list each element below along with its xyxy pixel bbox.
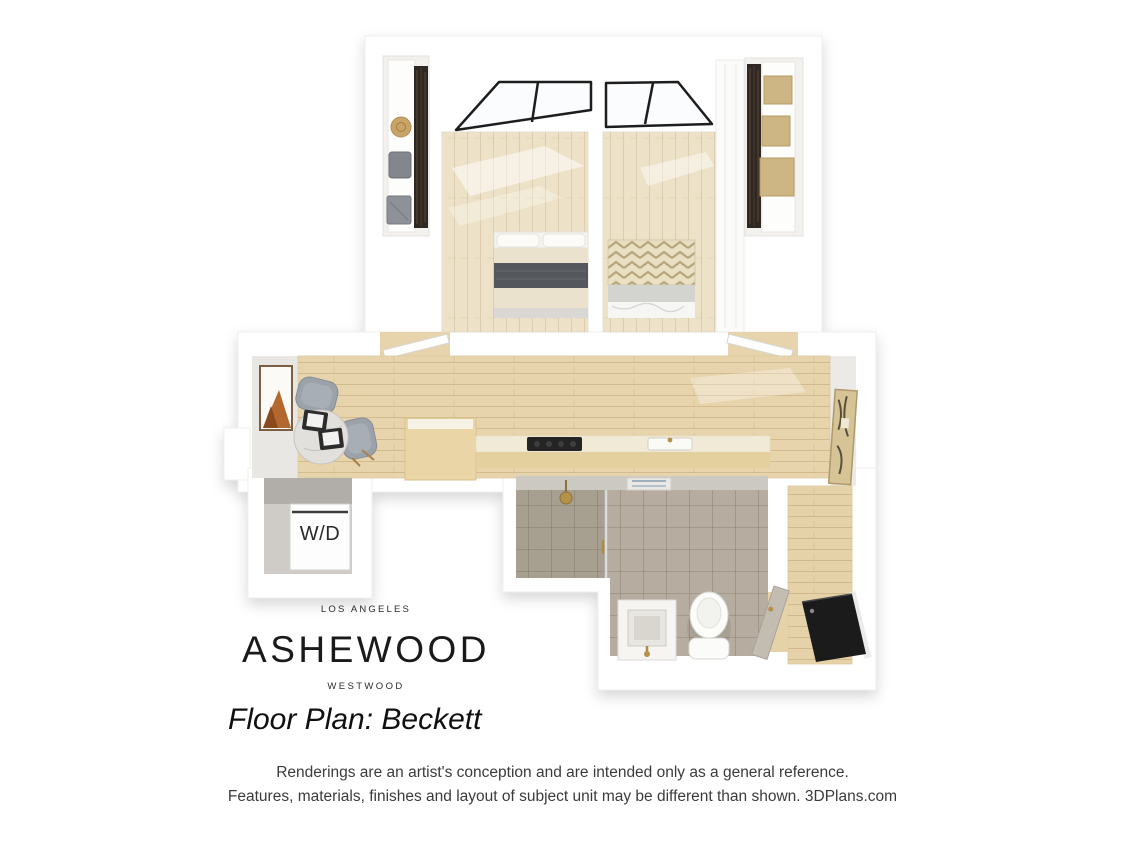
closet-left-contents: [387, 60, 428, 232]
burner: [570, 441, 576, 447]
storage-boxes: [760, 76, 794, 196]
pillow: [543, 234, 585, 247]
floor-plan-page: W/D LOS ANGELES ASHEWOOD WESTWOOD Floor …: [0, 0, 1125, 844]
shower-floor: [516, 490, 606, 578]
place-setting: [318, 428, 344, 451]
washer-dryer-label: W/D: [290, 523, 350, 546]
bathroom: [516, 476, 789, 660]
vanity-faucet-base: [644, 651, 650, 657]
vanity-sink: [618, 600, 676, 660]
built-in-wardrobe: [716, 60, 744, 332]
brand-city: LOS ANGELES: [216, 604, 516, 615]
left-wall-bump: [224, 428, 250, 480]
brand-name: ASHEWOOD: [191, 629, 541, 671]
counter-top: [476, 436, 770, 452]
door-knob: [810, 609, 814, 613]
toilet-tank: [689, 638, 729, 659]
kitchen-faucet: [668, 438, 673, 443]
bed-2: [608, 240, 695, 318]
floor-plan-rendering: [0, 0, 1125, 844]
pillow: [497, 234, 539, 247]
hat: [391, 117, 411, 137]
towel-niche: [627, 478, 671, 490]
counter-block-top: [408, 419, 473, 429]
burner: [546, 441, 552, 447]
dining-table: [294, 409, 348, 464]
dining-wall-art: [260, 366, 292, 430]
chevron-duvet: [608, 240, 695, 285]
storage-bag: [389, 152, 411, 178]
living-dining-area: [260, 356, 857, 485]
bed-1: [494, 232, 588, 318]
blanket: [494, 263, 588, 288]
plan-title: Floor Plan: Beckett: [228, 703, 481, 737]
toilet: [687, 592, 731, 659]
closet-right-contents: [747, 62, 795, 232]
burner: [534, 441, 540, 447]
disclaimer-line-1: Renderings are an artist's conception an…: [0, 761, 1125, 785]
place-setting: [302, 409, 329, 432]
disclaimer: Renderings are an artist's conception an…: [0, 761, 1125, 809]
burner: [558, 441, 564, 447]
wd-recess-shadow: [264, 478, 352, 504]
disclaimer-line-2: Features, materials, finishes and layout…: [0, 785, 1125, 809]
brand-neighborhood: WESTWOOD: [216, 681, 516, 692]
counter-front: [476, 452, 770, 468]
